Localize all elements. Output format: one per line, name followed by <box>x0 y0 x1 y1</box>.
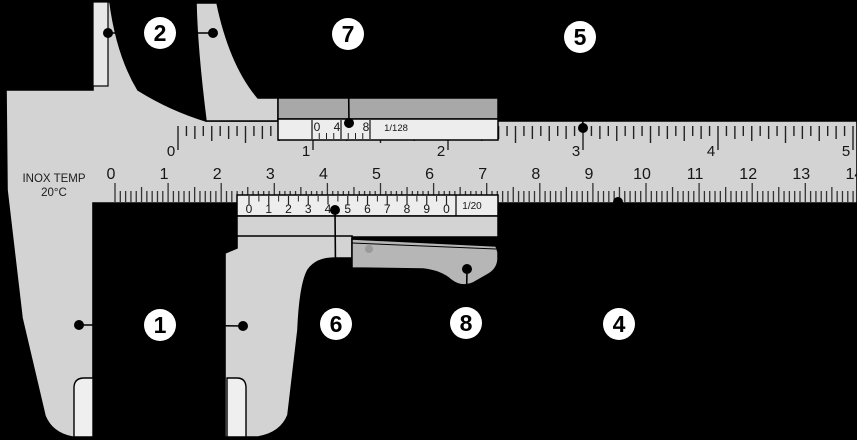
vernier-mm-label: 9 <box>423 202 430 216</box>
vernier-mm-fraction: 1/20 <box>462 201 482 212</box>
vernier-mm-label: 0 <box>246 202 253 216</box>
slider-band <box>237 216 498 237</box>
vernier-inch-label: 8 <box>363 120 370 134</box>
inch-label: 4 <box>707 143 715 160</box>
leader-line <box>618 202 619 324</box>
inch-label: 2 <box>437 143 445 160</box>
cm-label: 3 <box>266 166 275 183</box>
cm-label: 9 <box>584 166 593 183</box>
cm-label: 14 <box>846 166 857 183</box>
vernier-inch-label: 4 <box>334 120 341 134</box>
vernier-inch-clamp <box>278 98 498 119</box>
cm-label: 11 <box>687 166 704 183</box>
callout-number: 6 <box>330 311 343 337</box>
cm-label: 13 <box>792 166 810 183</box>
cm-label: 2 <box>213 166 222 183</box>
callout-number: 2 <box>154 20 167 46</box>
vernier-inch-fraction: 1/128 <box>384 123 408 134</box>
leader-dot <box>578 123 588 133</box>
cm-label: 8 <box>531 166 540 183</box>
inch-label: 5 <box>842 143 850 160</box>
leader-dot <box>330 205 340 215</box>
cm-label: 10 <box>633 166 651 183</box>
cm-label: 7 <box>478 166 487 183</box>
caliper-svg: 012345 01234567891011121314 INOX TEMP 20… <box>0 0 857 440</box>
caliper-diagram: 012345 01234567891011121314 INOX TEMP 20… <box>0 0 857 440</box>
vernier-inch-label: 0 <box>314 120 321 134</box>
thumb-grip-pin <box>365 245 373 253</box>
leader-line <box>335 210 336 324</box>
leader-dot <box>344 118 354 128</box>
engraving-line2: 20°C <box>41 187 67 199</box>
inch-label: 1 <box>302 143 310 160</box>
leader-dot <box>103 28 113 38</box>
callout-number: 8 <box>460 310 473 336</box>
leader-dot <box>613 197 623 207</box>
callout-number: 4 <box>613 311 626 337</box>
vernier-mm-label: 6 <box>364 202 371 216</box>
callout-number: 5 <box>574 24 587 50</box>
vernier-mm-label: 5 <box>344 202 351 216</box>
measuring-face-right <box>227 378 246 437</box>
leader-dot <box>238 321 248 331</box>
callout-number: 1 <box>154 312 167 338</box>
leader-dot <box>208 28 218 38</box>
vernier-mm-label: 7 <box>384 202 391 216</box>
vernier-mm-label: 8 <box>404 202 411 216</box>
callout-number: 7 <box>342 21 355 47</box>
cm-label: 0 <box>107 166 116 183</box>
cm-label: 6 <box>425 166 434 183</box>
vernier-mm-label: 1 <box>265 202 272 216</box>
leader-dot <box>74 320 84 330</box>
inch-label: 0 <box>167 143 175 160</box>
vernier-mm-label: 3 <box>305 202 312 216</box>
cm-label: 1 <box>160 166 169 183</box>
vernier-mm-label: 2 <box>285 202 292 216</box>
leader-dot <box>462 264 472 274</box>
vernier-mm-label: 0 <box>443 202 450 216</box>
engraving-line1: INOX TEMP <box>22 173 85 185</box>
cm-label: 12 <box>739 166 757 183</box>
measuring-face-left <box>74 378 93 437</box>
cm-label: 5 <box>372 166 381 183</box>
cm-label: 4 <box>319 166 328 183</box>
internal-jaw-fixed-face <box>93 2 108 86</box>
inch-label: 3 <box>572 143 580 160</box>
